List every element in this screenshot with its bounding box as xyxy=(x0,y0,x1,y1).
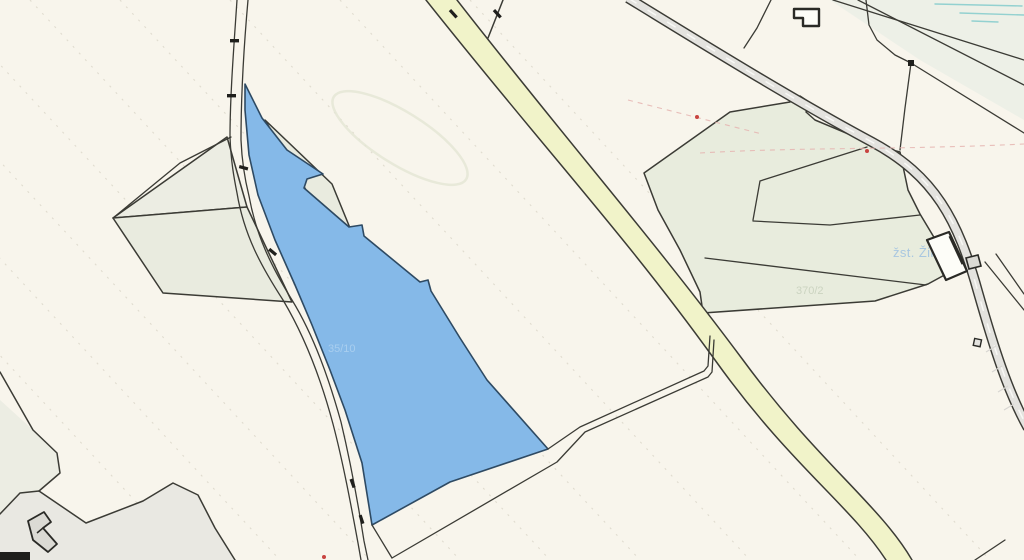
red-point-marker xyxy=(865,149,869,153)
track-tick xyxy=(230,39,239,42)
red-point-marker xyxy=(695,115,699,119)
red-point-marker xyxy=(322,555,326,559)
station-shed[interactable] xyxy=(966,255,981,269)
survey-point-marker xyxy=(908,60,914,66)
map-canvas[interactable]: 370/2 35/10 xyxy=(0,0,1024,560)
cadastral-map-svg[interactable]: 370/2 35/10 xyxy=(0,0,1024,560)
track-tick xyxy=(227,94,236,97)
edge-building-bar xyxy=(0,552,30,560)
faint-parcel-label-blue: 35/10 xyxy=(328,343,356,355)
faint-parcel-label-right: 370/2 xyxy=(796,285,824,297)
road-side-shed[interactable] xyxy=(973,338,981,346)
